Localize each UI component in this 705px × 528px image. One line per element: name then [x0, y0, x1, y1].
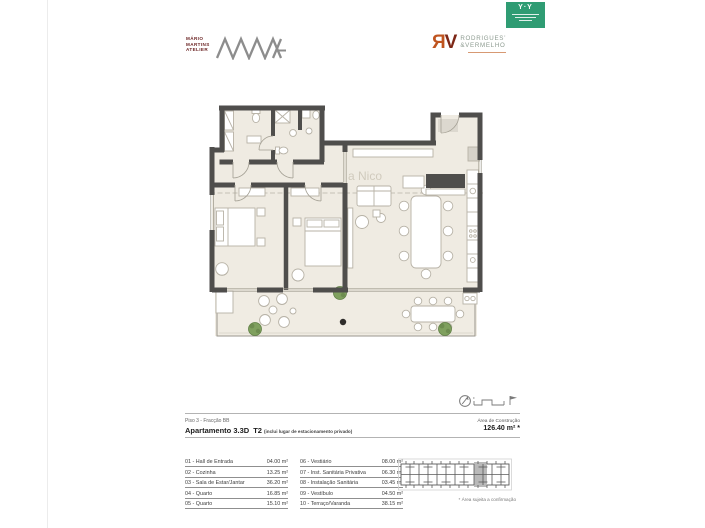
mma-word: ATELIER: [186, 47, 210, 53]
nightstand: [293, 218, 301, 226]
rv-letter-r: Я: [432, 32, 445, 53]
plant-icon: [439, 323, 452, 336]
room-name: 05 - Quarto: [185, 501, 212, 507]
sideboard: [353, 149, 433, 157]
room-name: 10 - Terraço/Varanda: [300, 501, 350, 507]
kitchen-cabinet: [403, 176, 424, 188]
shower: [275, 110, 290, 123]
apartment-floorplan: a Nico: [205, 100, 490, 345]
table-row: 02 - Cozinha13.25 m²: [185, 467, 288, 477]
apartment-type: T2: [253, 426, 262, 435]
table-row: 01 - Hall de Entrada04.00 m²: [185, 457, 288, 467]
rv-word: RODRIGUES’: [460, 35, 506, 42]
room-name: 03 - Sala de Estar/Jantar: [185, 480, 245, 486]
floor-fraction-label: Piso 3 - Fracção BB: [185, 418, 520, 424]
apartment-title: Apartamento 3.3DT2(inclui lugar de estac…: [185, 426, 520, 435]
divider-line: [185, 413, 520, 414]
table-row: 06 - Vestiário08.00 m²: [300, 457, 403, 467]
toilet: [276, 147, 288, 154]
table-row: 03 - Sala de Estar/Jantar36.20 m²: [185, 478, 288, 488]
room-area: 16.85 m²: [267, 491, 288, 497]
tv-bench: [348, 208, 353, 268]
table-row: 09 - Vestíbulo04.50 m²: [300, 488, 403, 498]
scale-bar-icon: [473, 396, 517, 405]
kitchen-island-counter: [426, 189, 465, 195]
badge-text-line: [519, 20, 532, 21]
room-name: 02 - Cozinha: [185, 470, 216, 476]
room-area: 36.20 m²: [267, 480, 288, 486]
table-row: 07 - Inst. Sanitária Privativa06.30 m²: [300, 467, 403, 477]
nightstand: [257, 238, 265, 246]
compass-and-scale: [458, 392, 520, 410]
area-label: Área de Construção: [477, 419, 520, 424]
room-table-left-column: 01 - Hall de Entrada04.00 m² 02 - Cozinh…: [185, 457, 288, 509]
room-area: 13.25 m²: [267, 470, 288, 476]
room-area: 04.00 m²: [267, 459, 288, 465]
mma-logo: MÁRIO MARTINS ATELIER: [186, 36, 291, 60]
rv-logo: ЯV RODRIGUES’ &VERMELHO: [432, 33, 506, 53]
certification-badge: Y·Y: [506, 2, 545, 28]
room-name: 04 - Quarto: [185, 491, 212, 497]
bed: [215, 208, 255, 246]
badge-text-line: [515, 17, 536, 18]
room-table-right-column: 06 - Vestiário08.00 m² 07 - Inst. Sanitá…: [300, 457, 403, 509]
room-name: 07 - Inst. Sanitária Privativa: [300, 470, 366, 476]
rv-logo-words: RODRIGUES’ &VERMELHO: [460, 35, 506, 53]
compass-icon: [460, 396, 471, 407]
badge-text-line: [512, 14, 539, 15]
page-edge-line: [47, 0, 48, 528]
mma-monogram-icon: [215, 36, 291, 60]
mma-logo-words: MÁRIO MARTINS ATELIER: [186, 36, 210, 53]
sofa: [357, 186, 391, 206]
badge-yy-icon: Y·Y: [518, 4, 533, 12]
plan-watermark: a Nico: [348, 169, 382, 183]
apartment-name: Apartamento 3.3D: [185, 426, 249, 435]
plant-icon: [249, 323, 262, 336]
dresser: [239, 188, 265, 196]
title-block: Piso 3 - Fracção BB Apartamento 3.3DT2(i…: [185, 418, 520, 435]
room-area: 15.10 m²: [267, 501, 288, 507]
room-name: 08 - Instalação Sanitária: [300, 480, 358, 486]
kitchen-counter: [467, 170, 479, 282]
armchair: [216, 263, 229, 276]
area-value: 126.40 m² *: [477, 425, 520, 432]
dresser: [291, 188, 319, 196]
area-footnote: * Área sujeita a confirmação: [398, 497, 516, 502]
kitchen-island: [426, 174, 465, 188]
apartment-note: (inclui lugar de estacionamento privado): [264, 429, 352, 434]
washbasin: [290, 130, 297, 137]
terrace-grill: [463, 293, 477, 304]
building-key-plan: [398, 456, 516, 494]
rv-monogram: ЯV: [432, 33, 456, 53]
terrace-column: [340, 319, 346, 325]
rv-letter-v: V: [445, 32, 457, 53]
lounge-chair: [356, 216, 369, 229]
bed: [305, 218, 341, 266]
divider-line: [185, 437, 520, 438]
room-name: 06 - Vestiário: [300, 459, 331, 465]
cabinet: [302, 110, 310, 118]
room-name: 09 - Vestíbulo: [300, 491, 333, 497]
table-row: 10 - Terraço/Varanda38.15 m²: [300, 499, 403, 509]
side-table: [373, 210, 380, 217]
floorplan-page: Y·Y MÁRIO MARTINS ATELIER ЯV RODRIGUES’ …: [0, 0, 705, 528]
rv-word: &VERMELHO: [460, 42, 506, 49]
toilet: [313, 111, 319, 119]
room-name: 01 - Hall de Entrada: [185, 459, 233, 465]
nightstand: [257, 208, 265, 216]
table-row: 08 - Instalação Sanitária03.45 m²: [300, 478, 403, 488]
armchair: [292, 269, 304, 281]
table-row: 05 - Quarto15.10 m²: [185, 499, 288, 509]
room-areas-table: 01 - Hall de Entrada04.00 m² 02 - Cozinh…: [185, 457, 403, 509]
table-row: 04 - Quarto16.85 m²: [185, 488, 288, 498]
toilet: [252, 110, 260, 123]
washbasin: [306, 128, 312, 134]
construction-area: Área de Construção 126.40 m² *: [477, 419, 520, 432]
rv-tagline-line: [468, 52, 506, 53]
planter-box: [216, 291, 233, 313]
